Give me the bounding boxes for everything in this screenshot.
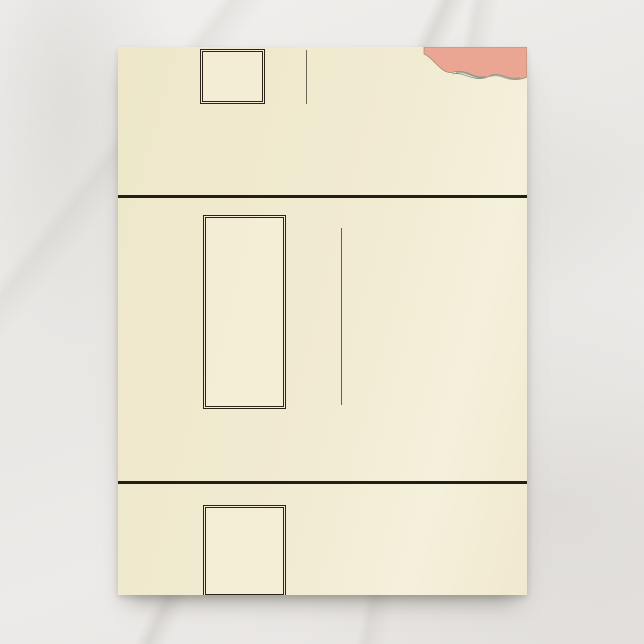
postcard	[118, 47, 527, 595]
section-garfield-1880	[118, 47, 527, 595]
ratio-by-states-table	[203, 505, 286, 595]
us-map-garfield-1880	[312, 499, 527, 595]
marble-background	[0, 0, 644, 644]
